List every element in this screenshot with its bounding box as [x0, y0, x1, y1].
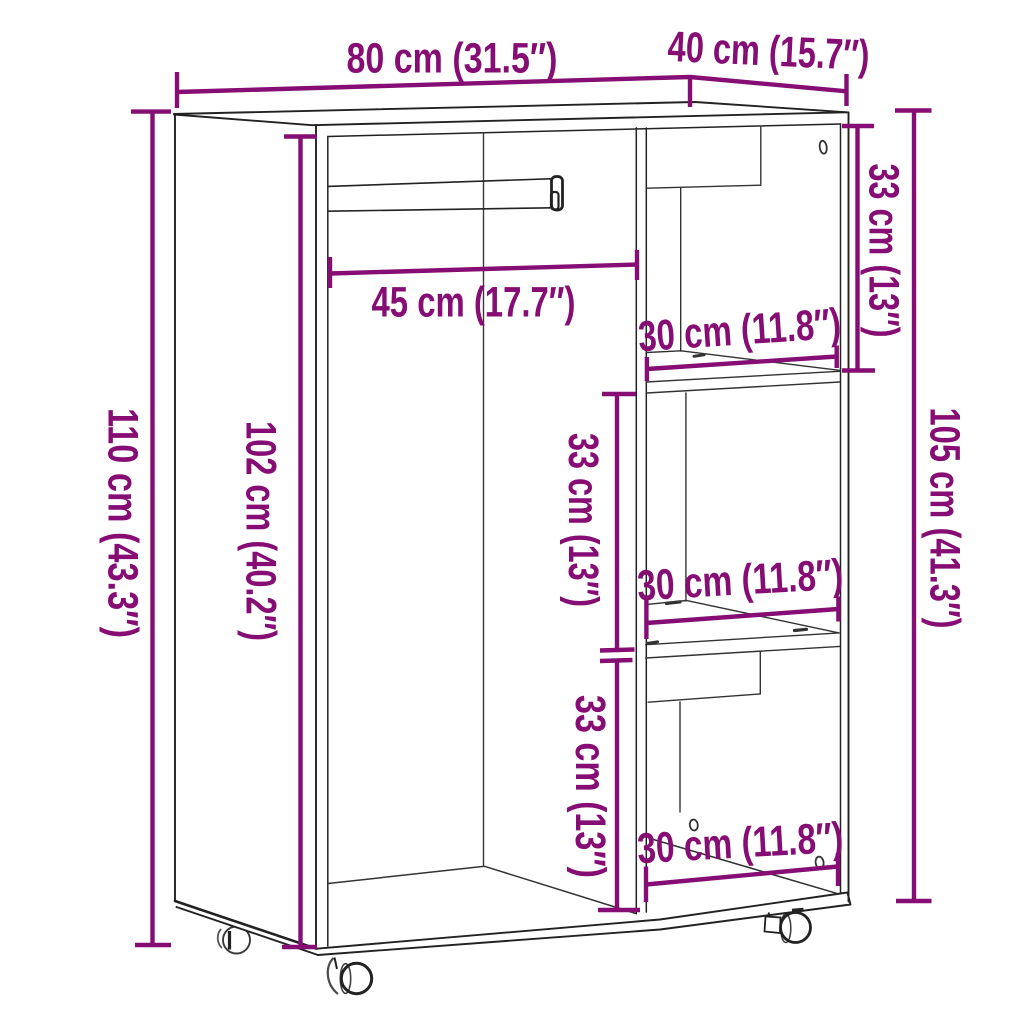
svg-text:33 cm (13″): 33 cm (13″) [566, 695, 614, 878]
svg-text:102 cm (40.2″): 102 cm (40.2″) [237, 421, 285, 641]
svg-text:110 cm (43.3″): 110 cm (43.3″) [99, 408, 147, 638]
svg-text:80 cm (31.5″): 80 cm (31.5″) [347, 35, 558, 83]
svg-text:40 cm (15.7″): 40 cm (15.7″) [667, 23, 871, 80]
svg-text:33 cm (13″): 33 cm (13″) [860, 164, 908, 338]
svg-text:45 cm (17.7″): 45 cm (17.7″) [372, 279, 576, 327]
svg-text:33 cm (13″): 33 cm (13″) [559, 433, 607, 607]
svg-text:105 cm (41.3″): 105 cm (41.3″) [921, 408, 969, 629]
